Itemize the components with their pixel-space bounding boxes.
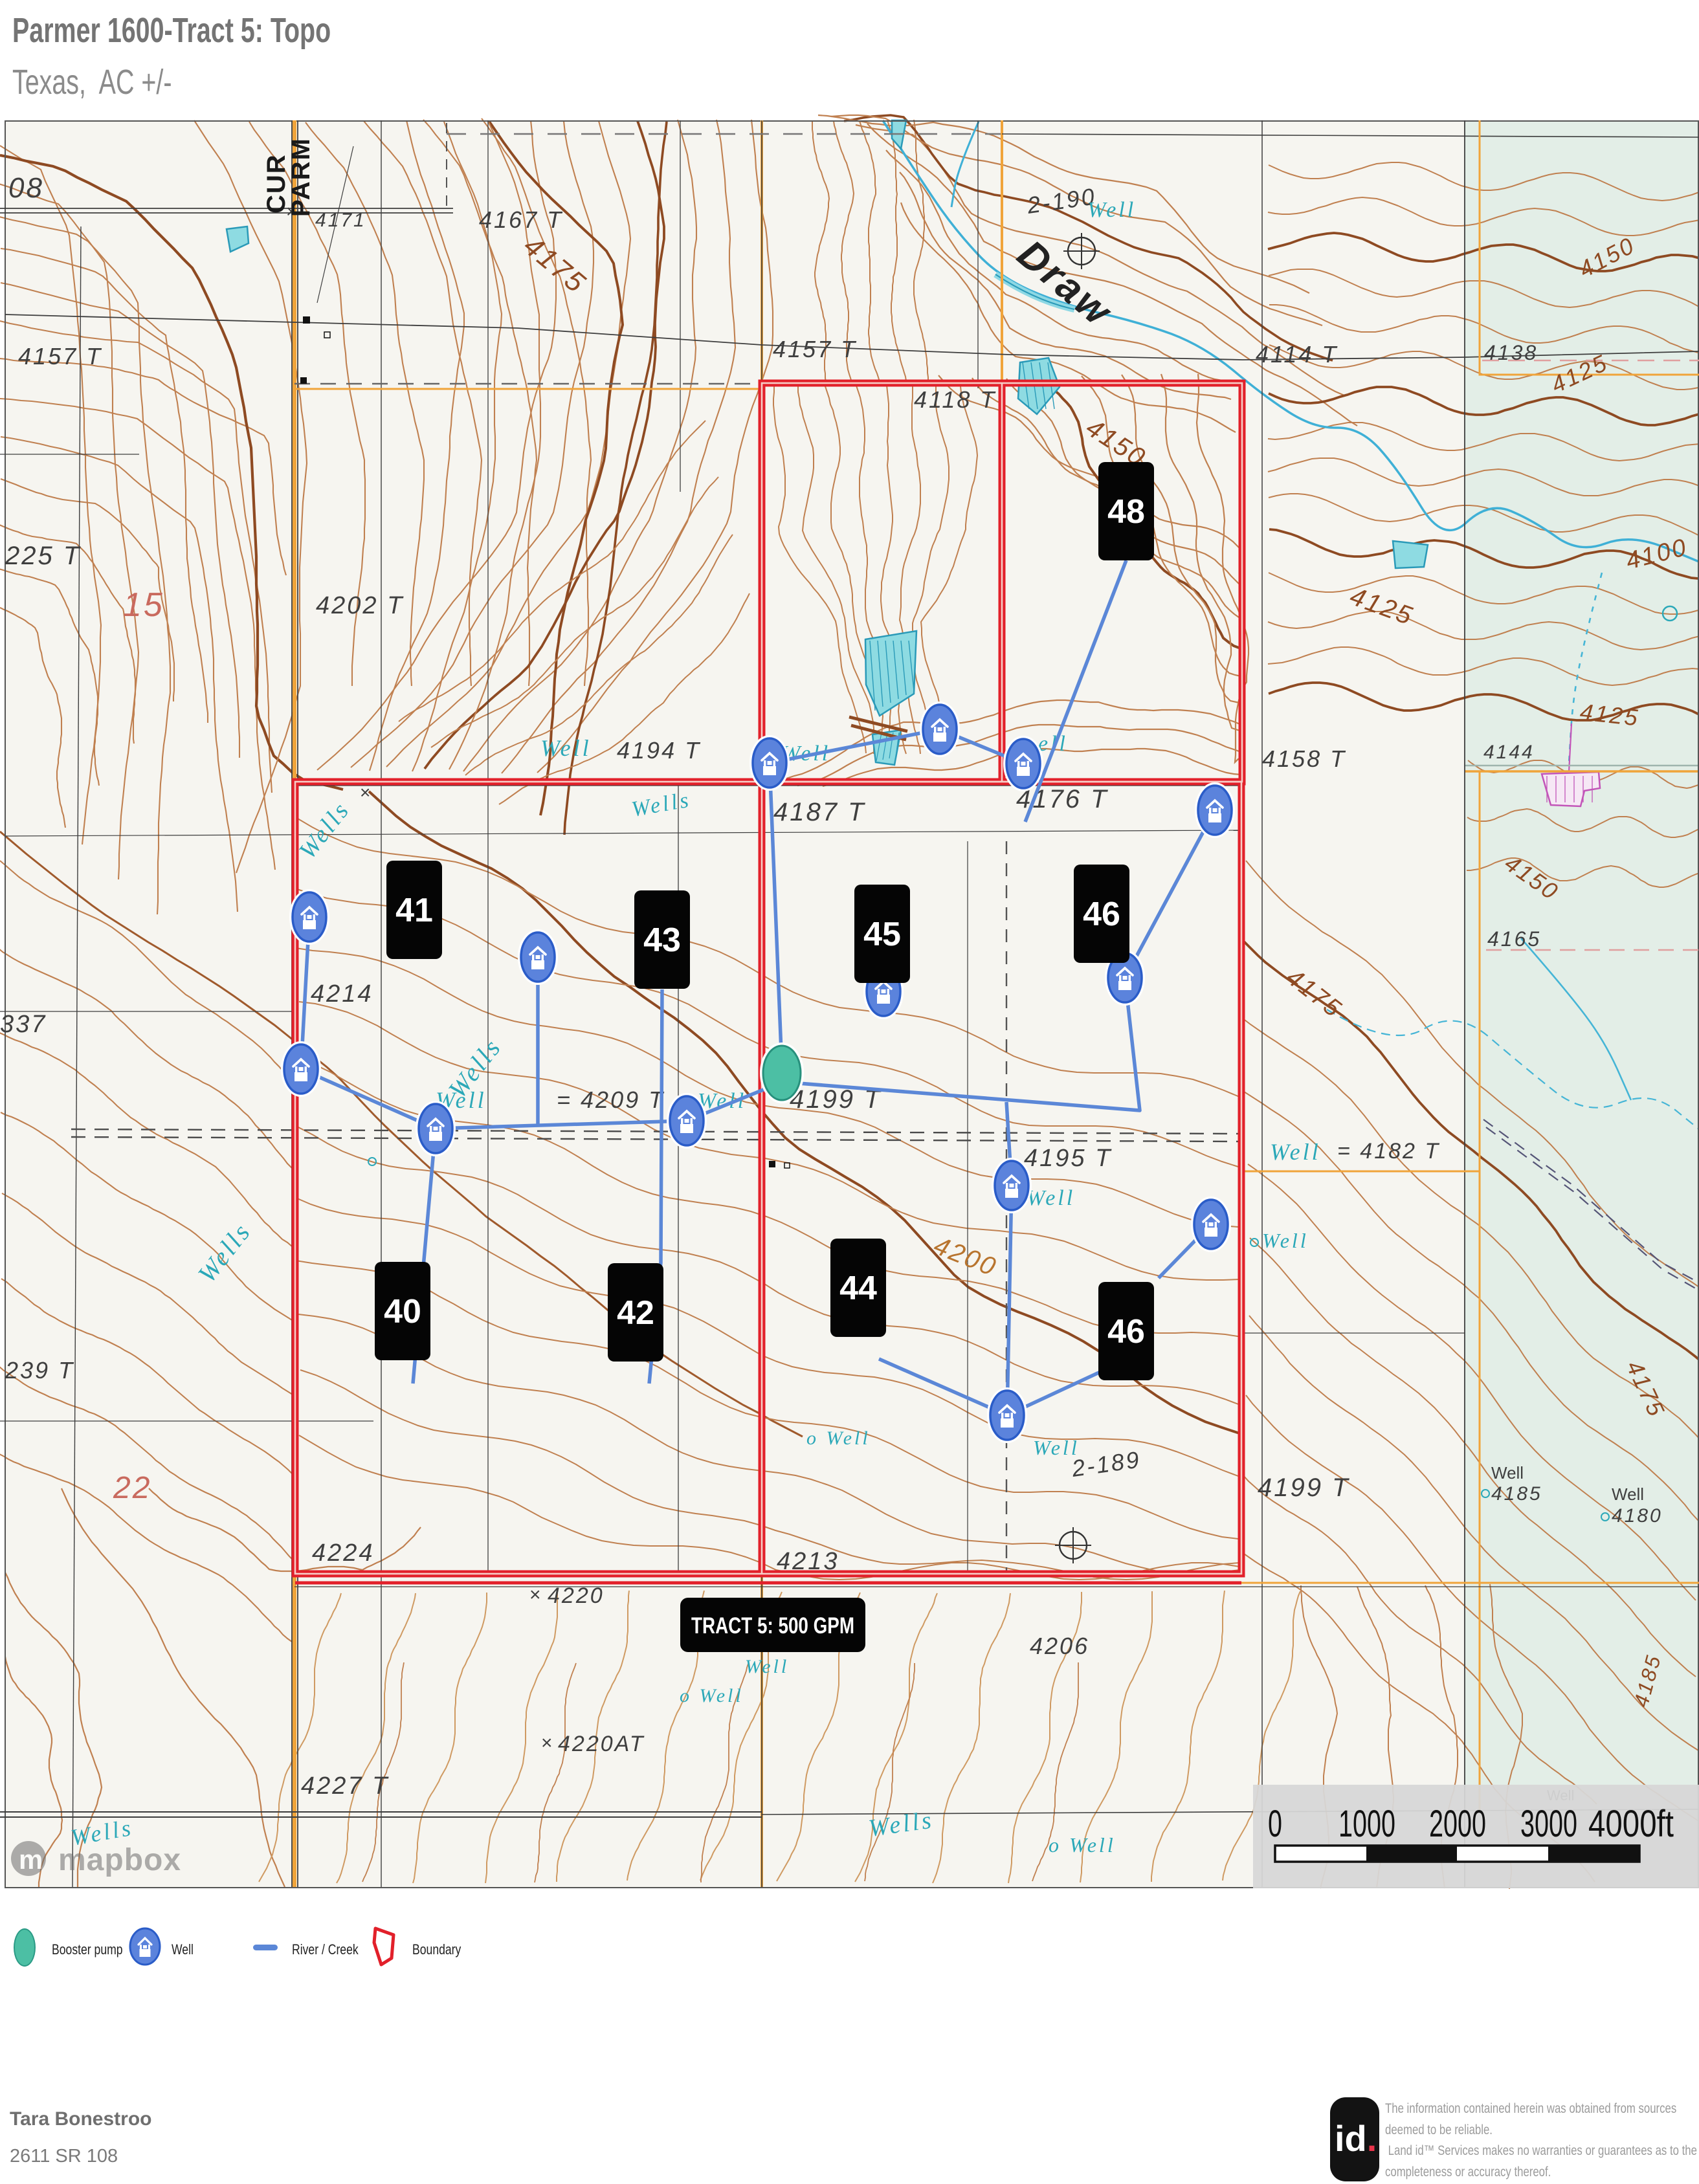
svg-text:42: 42 [617, 1294, 654, 1332]
svg-text:44: 44 [839, 1270, 877, 1307]
svg-text:4214: 4214 [311, 980, 373, 1008]
svg-text:239 T: 239 T [5, 1357, 74, 1384]
svg-text:22: 22 [113, 1471, 151, 1505]
svg-text:o Well: o Well [1049, 1833, 1116, 1857]
svg-text:= 4182 T: = 4182 T [1337, 1139, 1440, 1164]
svg-text:mapbox: mapbox [58, 1843, 181, 1877]
svg-text:48: 48 [1107, 493, 1145, 531]
svg-text:Well: Well [745, 1656, 789, 1677]
svg-text:46: 46 [1083, 896, 1120, 933]
svg-text:40: 40 [384, 1293, 421, 1330]
svg-text:Well: Well [540, 735, 592, 761]
svg-text:1000: 1000 [1338, 1803, 1395, 1845]
svg-text:4206: 4206 [1030, 1633, 1089, 1659]
svg-text:4227 T: 4227 T [301, 1772, 389, 1800]
svg-text:45: 45 [863, 916, 901, 953]
svg-text:4144: 4144 [1483, 742, 1535, 763]
svg-text:Well: Well [1027, 1186, 1075, 1210]
svg-text:0: 0 [1268, 1803, 1282, 1845]
svg-text:41: 41 [395, 892, 433, 929]
svg-text:×: × [360, 782, 372, 802]
svg-text:15: 15 [123, 586, 164, 624]
svg-text:4220AT: 4220AT [558, 1732, 645, 1756]
svg-text:4180: 4180 [1612, 1505, 1663, 1527]
svg-text:4199 T: 4199 T [1258, 1473, 1350, 1502]
svg-text:Well: Well [1087, 198, 1136, 222]
svg-text:4171: 4171 [315, 210, 366, 231]
svg-text:4194 T: 4194 T [617, 737, 701, 764]
svg-text:43: 43 [643, 921, 681, 959]
svg-text:×: × [541, 1732, 555, 1754]
svg-text:Well: Well [1491, 1463, 1524, 1483]
svg-text:4187 T: 4187 T [773, 798, 866, 826]
svg-text:4195 T: 4195 T [1024, 1145, 1112, 1172]
svg-text:4000ft: 4000ft [1588, 1803, 1674, 1845]
svg-text:46: 46 [1107, 1313, 1145, 1351]
svg-text:= 4209 T: = 4209 T [557, 1086, 665, 1113]
svg-text:TRACT 5: 500 GPM: TRACT 5: 500 GPM [691, 1613, 854, 1638]
svg-text:Well: Well [1270, 1139, 1321, 1165]
svg-text:4158 T: 4158 T [1262, 745, 1346, 772]
svg-text:×: × [529, 1584, 543, 1605]
svg-text:4157 T: 4157 T [773, 336, 857, 362]
svg-text:o Well: o Well [806, 1428, 871, 1449]
svg-text:4118 T: 4118 T [914, 386, 996, 413]
svg-text:4114 T: 4114 T [1256, 341, 1338, 368]
svg-text:4202 T: 4202 T [316, 592, 404, 619]
svg-text:4185: 4185 [1491, 1483, 1542, 1505]
svg-text:225 T: 225 T [5, 542, 81, 570]
svg-text:4157 T: 4157 T [18, 343, 102, 370]
svg-text:Well: Well [1033, 1436, 1080, 1459]
svg-text:PARM: PARM [287, 137, 315, 217]
svg-text:3000: 3000 [1520, 1803, 1577, 1845]
svg-text:m: m [19, 1844, 43, 1875]
svg-text:4224: 4224 [312, 1539, 375, 1567]
svg-text:o Well: o Well [680, 1685, 744, 1706]
svg-text:Well: Well [1262, 1229, 1309, 1252]
svg-text:4220: 4220 [548, 1583, 605, 1608]
svg-text:2000: 2000 [1429, 1803, 1486, 1845]
svg-text:337: 337 [0, 1011, 47, 1038]
svg-text:4138: 4138 [1484, 341, 1538, 364]
svg-text:08: 08 [8, 172, 44, 204]
svg-text:4167 T: 4167 T [479, 206, 563, 233]
svg-text:Well: Well [1612, 1484, 1644, 1504]
svg-text:4165: 4165 [1487, 927, 1541, 951]
